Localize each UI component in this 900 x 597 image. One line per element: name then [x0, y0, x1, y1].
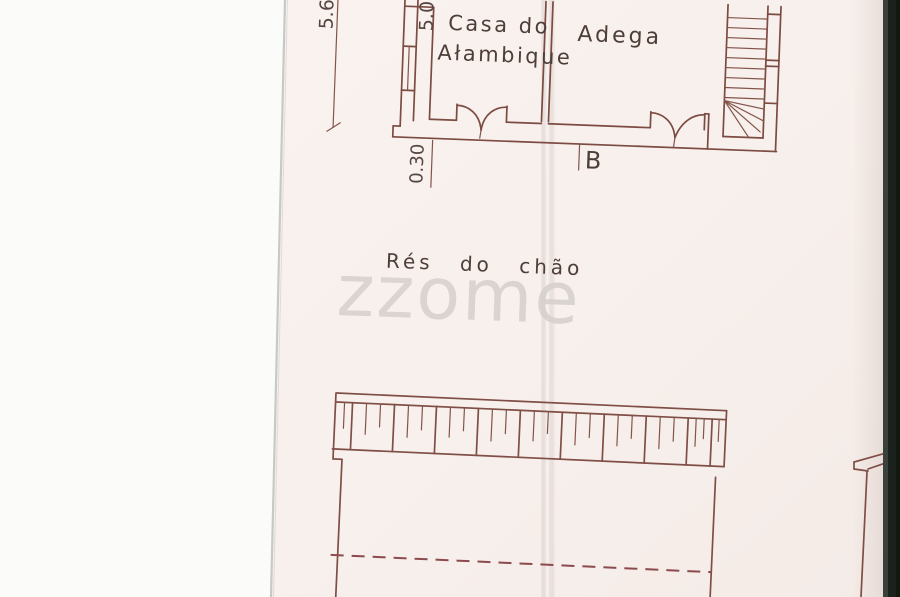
dimension-5-0-label: 5.0 — [415, 1, 438, 32]
scanned-floor-plan-page: 5.6 5.0 — [0, 0, 900, 597]
watermark: zzome — [335, 248, 582, 340]
dimension-0-30-label: 0.30 — [406, 143, 429, 184]
dimension-5-6-label: 5.6 — [315, 0, 338, 30]
right-shading — [852, 0, 886, 597]
room-label-casa-do: Casa do — [448, 11, 551, 39]
scan-image: 5.6 5.0 — [0, 0, 900, 597]
room-label-adega: Adega — [577, 22, 663, 50]
scan-dark-edge-inner — [896, 0, 900, 597]
dimension-5-0: 5.0 — [415, 1, 438, 32]
section-mark-label: B — [584, 146, 602, 175]
